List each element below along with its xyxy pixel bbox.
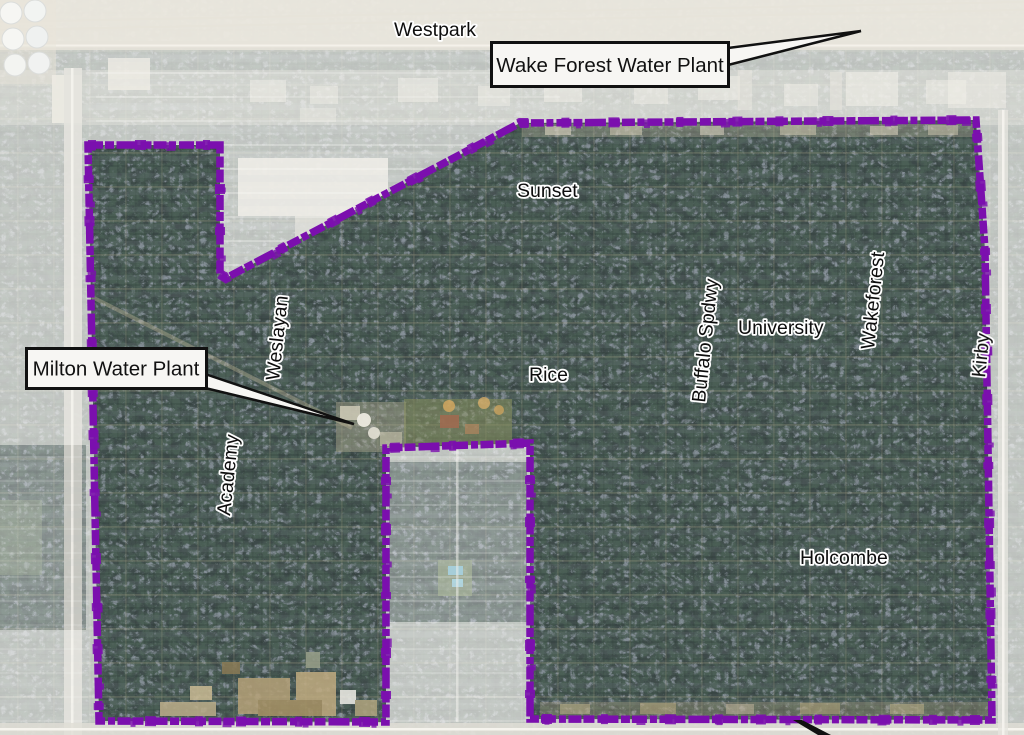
svg-text:University: University [738,317,824,339]
svg-text:Sunset: Sunset [517,180,578,202]
svg-text:Wake Forest Water Plant: Wake Forest Water Plant [496,54,724,77]
svg-text:Rice: Rice [529,364,568,386]
svg-text:Westpark: Westpark [394,19,476,41]
svg-text:Holcombe: Holcombe [800,547,888,569]
svg-text:Milton Water Plant: Milton Water Plant [33,358,200,381]
svg-text:Kirby: Kirby [968,332,995,379]
